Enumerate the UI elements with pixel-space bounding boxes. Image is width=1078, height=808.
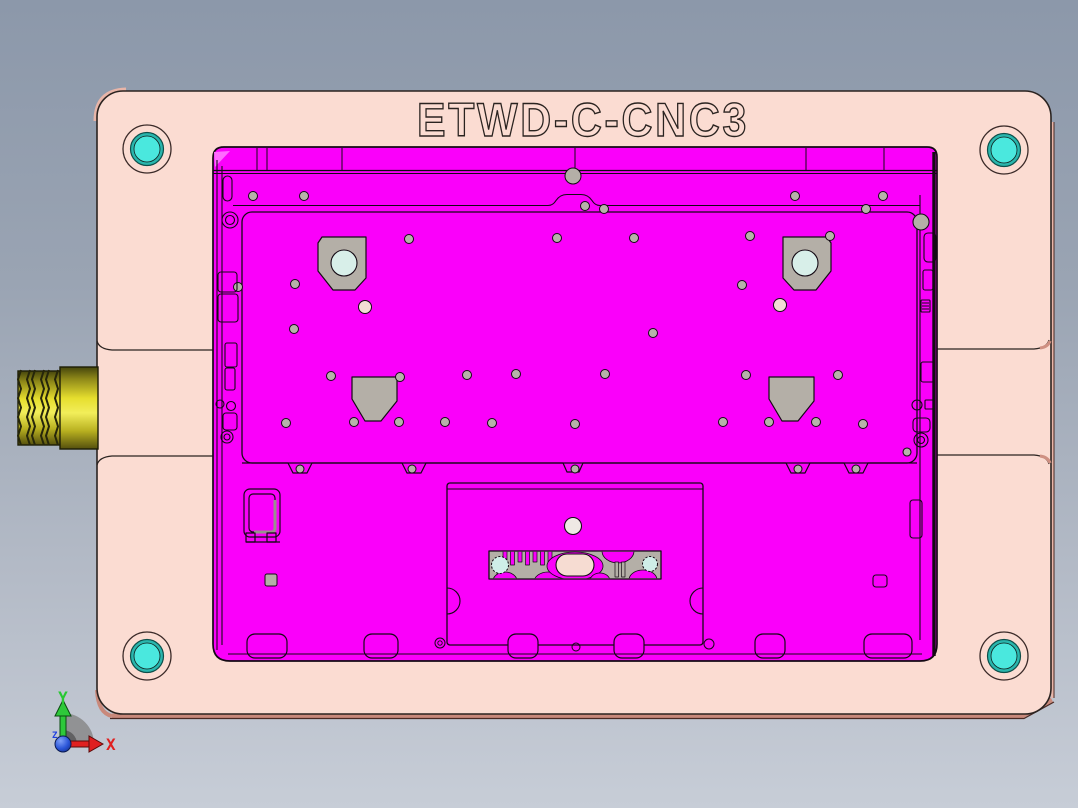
pad-hole [331,250,357,276]
screw-hole-dot [862,205,871,214]
strip-tooth [526,551,530,565]
screw-hole-dot [512,370,521,379]
screw-hole-dot [834,371,843,380]
soft-hole-dot [774,299,787,312]
bolt-hole[interactable] [123,125,171,173]
screw-hole-dot [826,232,835,241]
screw-hole-dot [396,373,405,382]
screw-hole-dot [649,329,658,338]
bump-dot [852,465,860,473]
hinge-center-boss [565,168,581,184]
screw-hole-dot [630,234,639,243]
screw-hole-dot [441,418,450,427]
screw-hole-dot [742,371,751,380]
screw-hole-dot [581,202,590,211]
screw-hole-dot [327,372,336,381]
pad-hole [792,250,818,276]
strip-left-hole [492,557,509,574]
bolt-hole[interactable] [980,632,1028,680]
soft-hole-dot [359,301,372,314]
screw-hole-dot [291,280,300,289]
bolt-core [134,643,160,669]
screw-hole-dot [746,232,755,241]
screw-hole-dot [600,205,609,214]
x-axis-arrowhead [89,736,103,752]
screw-hole-dot [234,283,243,292]
strip-tooth [518,551,522,562]
screw-hole-dot [765,418,774,427]
screw-hole-dot [738,281,747,290]
engraved-title: ETWD-C-CNC3 [417,93,749,146]
bolt-hole[interactable] [123,632,171,680]
topcase-outline[interactable] [213,147,937,661]
screw-hole-dot [350,418,359,427]
z-axis-label: Z [52,731,58,741]
strip-tooth [541,551,545,565]
rod-shank [60,367,98,449]
bump-dot [571,465,579,473]
workpiece-topcase[interactable] [213,147,937,661]
screw-hole-dot [719,418,728,427]
threaded-rod[interactable] [18,367,98,449]
screw-hole-dot [300,192,309,201]
screw-hole-dot [405,235,414,244]
cad-canvas[interactable]: ETWD-C-CNC3 [0,0,1078,808]
bump-dot [794,465,802,473]
x-axis-label: X [106,735,116,754]
bump-dot [296,465,304,473]
screw-hole-dot [290,325,299,334]
strip-tooth [511,551,515,565]
strip-center-oval [556,554,594,576]
bolt-core [134,136,160,162]
screw-hole-dot [571,420,580,429]
screw-hole-dot [791,192,800,201]
bolt-core [991,643,1017,669]
cad-viewport[interactable]: ETWD-C-CNC3 [0,0,1078,808]
screw-hole-dot [812,418,821,427]
screw-hole-dot [249,192,258,201]
y-axis-label: Y [58,688,68,707]
small-pad [265,574,277,586]
screw-hole-dot [879,192,888,201]
screw-hole-dot [395,418,404,427]
screw-hole-dot [859,420,868,429]
bump-dot [408,465,416,473]
screw-hole-dot [282,419,291,428]
bolt-hole[interactable] [980,126,1028,174]
strip-tooth [533,551,537,562]
screw-hole-dot [601,370,610,379]
strip-right-hole [643,557,658,572]
screw-hole-dot [463,371,472,380]
center-locating-hole [565,518,582,535]
screw-hole-dot [553,234,562,243]
bolt-core [991,137,1017,163]
screw-hole-dot [488,419,497,428]
